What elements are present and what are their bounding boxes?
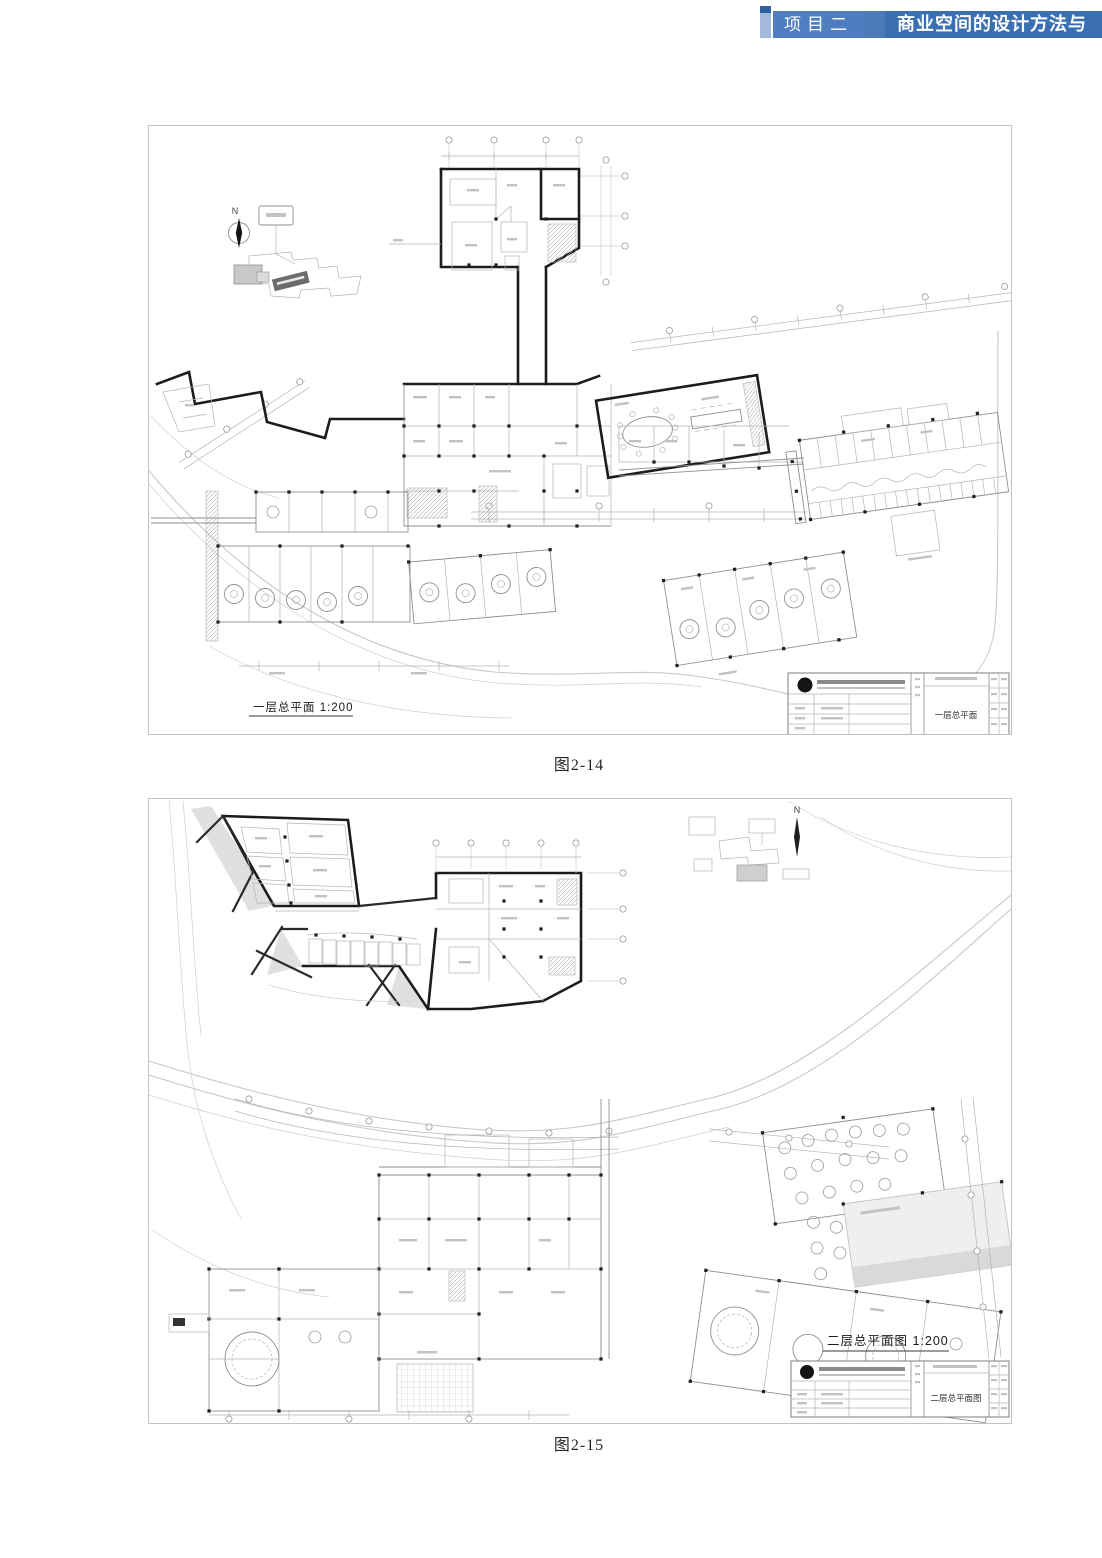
header-strip-cap	[760, 6, 771, 13]
site-boundary-curves	[149, 331, 998, 718]
key-plan	[234, 206, 361, 298]
plan-label-2: 二层总平面图 1:200	[823, 1334, 949, 1351]
central-complex-2	[377, 1099, 609, 1361]
title-block: 一层总平面	[788, 673, 1009, 734]
north-arrow-2: N	[794, 805, 801, 857]
plan-label-text: 一层总平面 1:200	[253, 700, 353, 714]
figure-2-15-plan-image: N	[148, 798, 1012, 1424]
grid-dimension-chains	[176, 282, 1011, 522]
north-letter: N	[232, 206, 239, 216]
plan-label: 一层总平面 1:200	[249, 700, 353, 716]
header-separator	[864, 11, 885, 38]
right-wing	[782, 395, 1011, 576]
left-zigzag-wall	[157, 372, 404, 438]
central-complex	[402, 376, 611, 528]
titleblock-2-drawing-name: 二层总平面图	[930, 1393, 981, 1403]
key-plan-2	[689, 817, 809, 881]
second-floor-plan-drawing: N	[149, 799, 1011, 1423]
bottom-center-block	[662, 550, 861, 682]
lower-wing-band	[252, 927, 428, 1009]
figure-2-14-plan-image: N	[148, 125, 1012, 735]
page: { "header": { "tab_label": "项目二", "title…	[0, 0, 1102, 1558]
top-building	[389, 137, 628, 384]
title-block-2: 二层总平面图	[791, 1361, 1009, 1417]
header-project-tab: 项目二	[773, 11, 864, 38]
top-left-building	[191, 806, 436, 911]
left-room-cluster	[169, 1267, 473, 1412]
header-chapter-title: 商业空间的设计方法与	[885, 11, 1102, 38]
north-arrow: N	[229, 206, 250, 248]
north-letter-2: N	[794, 805, 801, 815]
first-floor-plan-drawing: N	[149, 126, 1011, 734]
titleblock-drawing-name: 一层总平面	[935, 710, 978, 720]
middle-building	[428, 840, 626, 1009]
figure-2-15-caption: 图2-15	[148, 1431, 1010, 1455]
middle-rooms	[619, 426, 804, 476]
figure-2-14-caption: 图2-14	[148, 751, 1010, 775]
plan-label-2-text: 二层总平面图 1:200	[827, 1334, 949, 1348]
bottom-dimension-chain	[209, 1410, 569, 1422]
